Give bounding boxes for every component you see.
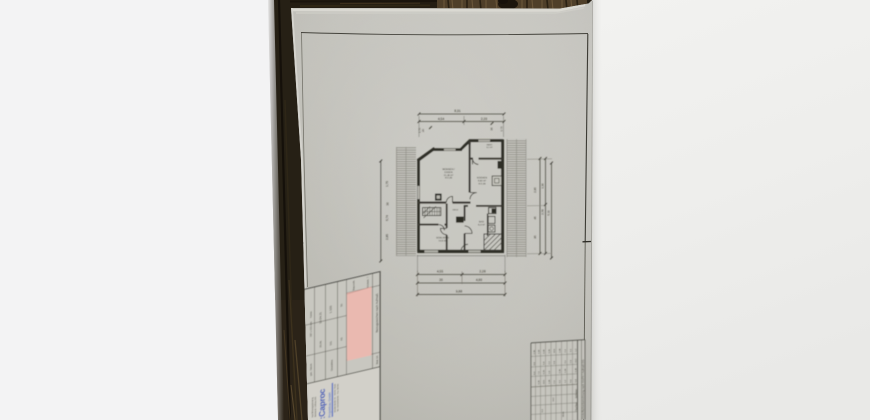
svg-text:5,74: 5,74 xyxy=(386,215,389,221)
svg-text:Grundriss: Grundriss xyxy=(330,359,333,371)
svg-text:1.70: 1.70 xyxy=(419,128,422,133)
svg-text:3,25: 3,25 xyxy=(548,349,550,354)
svg-text:2,35: 2,35 xyxy=(533,350,535,355)
svg-text:1:100: 1:100 xyxy=(329,305,332,313)
svg-text:0,8: 0,8 xyxy=(553,361,555,364)
svg-text:1,16: 1,16 xyxy=(564,369,566,374)
svg-text:3,1: 3,1 xyxy=(564,360,566,363)
svg-text:1,45: 1,45 xyxy=(559,348,561,353)
svg-text::Caproc: :Caproc xyxy=(317,388,327,420)
svg-text:2,35: 2,35 xyxy=(559,369,561,374)
svg-text:3,3: 3,3 xyxy=(570,349,572,352)
svg-text:1,2: 1,2 xyxy=(575,349,577,352)
svg-text:SCHLAFEN: SCHLAFEN xyxy=(436,237,449,240)
svg-text:6,4: 6,4 xyxy=(533,372,535,375)
svg-text:Blatt 1/4: Blatt 1/4 xyxy=(376,355,379,365)
svg-text:ABST.: ABST. xyxy=(486,144,492,146)
svg-text:6,4: 6,4 xyxy=(541,409,543,412)
svg-text:5,11: 5,11 xyxy=(547,210,550,215)
svg-text:20: 20 xyxy=(439,279,443,283)
svg-text:1,16: 1,16 xyxy=(538,350,540,355)
svg-text:3,1 m²: 3,1 m² xyxy=(486,146,492,148)
svg-text:2,85: 2,85 xyxy=(534,187,537,193)
svg-text:3,3: 3,3 xyxy=(559,380,561,383)
svg-text:10.04.21: 10.04.21 xyxy=(319,311,322,324)
svg-text:Bauvorh.: Bauvorh. xyxy=(353,280,356,291)
svg-text:Wohnh. 7: Wohnh. 7 xyxy=(366,276,369,288)
svg-text:297 x 420 mm: 297 x 420 mm xyxy=(310,321,313,337)
svg-text:1,36: 1,36 xyxy=(541,183,544,189)
svg-text:10,5: 10,5 xyxy=(543,380,545,385)
svg-text:Bezugszeichen nach Aufmaß: Bezugszeichen nach Aufmaß xyxy=(375,293,378,333)
svg-text:9,6: 9,6 xyxy=(570,379,572,382)
svg-text:7,3: 7,3 xyxy=(538,371,540,374)
svg-text:36: 36 xyxy=(490,127,493,130)
svg-text:25.04.: 25.04. xyxy=(319,340,322,348)
svg-text:2,20: 2,20 xyxy=(481,117,487,121)
svg-text:4,46: 4,46 xyxy=(543,349,545,354)
svg-text:Wohnflächenberechnung nach WoF: Wohnflächenberechnung nach WoFlV / Aufma… xyxy=(582,359,585,419)
svg-text:2,85: 2,85 xyxy=(386,234,389,240)
svg-text:10,5: 10,5 xyxy=(553,349,555,354)
svg-text:1,45: 1,45 xyxy=(548,379,550,384)
svg-text:0,25: 0,25 xyxy=(543,370,545,375)
svg-text:21,46 m²: 21,46 m² xyxy=(444,174,454,177)
svg-text:WOHNEN /: WOHNEN / xyxy=(442,168,454,171)
svg-text:1,9: 1,9 xyxy=(548,371,550,374)
svg-text:Flur/Bad: Flur/Bad xyxy=(575,402,578,411)
svg-text:3,25: 3,25 xyxy=(538,380,540,385)
svg-text:9,6: 9,6 xyxy=(533,362,535,365)
svg-text:4,54: 4,54 xyxy=(438,117,444,121)
svg-text:6,4 m²: 6,4 m² xyxy=(478,223,485,226)
svg-text:14,6 m²: 14,6 m² xyxy=(438,239,446,242)
svg-text:H:2,46: H:2,46 xyxy=(478,182,485,185)
svg-text:BAD: BAD xyxy=(479,221,484,224)
svg-text:2,2: 2,2 xyxy=(548,361,550,364)
svg-text:2,4: 2,4 xyxy=(564,349,566,352)
svg-text:14,2: 14,2 xyxy=(552,397,554,402)
svg-text:5,8: 5,8 xyxy=(575,379,577,382)
svg-text:ESSEN: ESSEN xyxy=(444,171,452,174)
svg-text:DG: DG xyxy=(330,341,333,346)
svg-text:4,80: 4,80 xyxy=(476,279,482,283)
svg-text:1,2: 1,2 xyxy=(564,380,566,383)
svg-text:1,75: 1,75 xyxy=(386,181,389,187)
svg-text:Bestand: Umbau DG: Bestand: Umbau DG xyxy=(314,396,317,417)
svg-text:45: 45 xyxy=(534,216,537,219)
svg-text:DIELE: DIELE xyxy=(453,209,459,211)
svg-text:4,46: 4,46 xyxy=(575,368,577,373)
svg-text:4,55: 4,55 xyxy=(437,270,443,274)
svg-text:Name: Name xyxy=(310,311,313,318)
svg-text:2,28: 2,28 xyxy=(479,270,485,274)
svg-text:2,4: 2,4 xyxy=(553,380,555,383)
svg-text:Musterstraße 12 · 01234 Stadt: Musterstraße 12 · 01234 Stadt xyxy=(334,383,337,412)
svg-text:Tel. 01234/56789 · Fax 56780: Tel. 01234/56789 · Fax 56780 xyxy=(336,383,339,412)
svg-text:36: 36 xyxy=(386,202,389,205)
svg-text:20: 20 xyxy=(422,129,425,132)
svg-text:85: 85 xyxy=(534,235,537,238)
svg-text:Ausführungsplanung: Ausführungsplanung xyxy=(311,396,314,418)
svg-text:38,65: 38,65 xyxy=(562,411,564,417)
svg-text:Projektbau GmbH: Projektbau GmbH xyxy=(328,391,332,418)
svg-text:9,82 m²: 9,82 m² xyxy=(478,179,486,182)
svg-text:5,8: 5,8 xyxy=(543,361,545,364)
svg-text:H:2,46: H:2,46 xyxy=(445,177,452,180)
svg-text:14,2: 14,2 xyxy=(575,358,577,363)
svg-text:gez. Datum: gez. Datum xyxy=(310,363,313,376)
svg-text:8,31: 8,31 xyxy=(454,110,460,114)
svg-text:9,88: 9,88 xyxy=(456,290,462,294)
svg-text:2,78: 2,78 xyxy=(541,209,544,215)
svg-text:Schlafen: Schlafen xyxy=(575,389,578,398)
svg-text:KOCHEN: KOCHEN xyxy=(477,177,487,180)
svg-text:1.75: 1.75 xyxy=(500,126,503,131)
svg-text:2,9: 2,9 xyxy=(570,360,572,363)
